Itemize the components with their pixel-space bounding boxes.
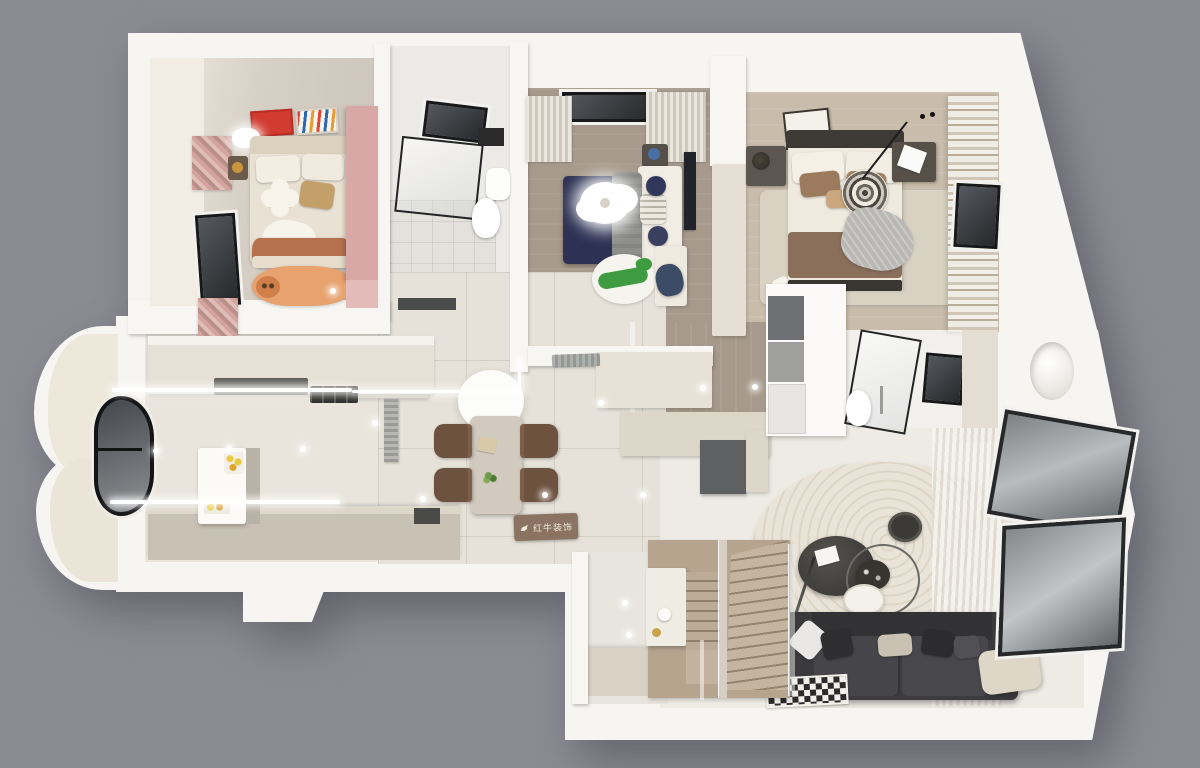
wall-entry-left <box>572 552 588 704</box>
side-table-dark <box>888 512 922 542</box>
led-strip-kitchen-south <box>110 500 340 504</box>
master-bath-window <box>922 352 966 405</box>
kitchen-counter-north-top <box>148 336 434 345</box>
spotlight <box>542 492 548 498</box>
stairs-glass-panel-left <box>718 540 727 698</box>
range-hood <box>214 378 308 395</box>
tall-cabinet-bed2-master <box>712 164 746 336</box>
bath1-shelf <box>478 128 504 146</box>
led-strip-kitchen-north <box>112 388 352 392</box>
wardrobe-door-white <box>768 384 806 434</box>
floorplan-render: 红牛装饰 <box>0 0 1200 768</box>
dining-table <box>470 416 522 514</box>
spotlight <box>300 446 306 452</box>
sofa-pillow-gray <box>953 635 981 660</box>
bed2-monitor <box>684 152 696 230</box>
wall-bath-bed2 <box>510 42 528 372</box>
fridge-side-panel <box>246 448 260 524</box>
spotlight <box>626 632 632 638</box>
sofa-pillow-beige <box>877 633 912 657</box>
kitchen-appliance-dark <box>414 508 440 524</box>
spotlight <box>622 600 628 606</box>
spotlight <box>700 385 706 391</box>
wardrobe-door-gray <box>768 342 804 382</box>
kids-headboard <box>250 136 350 154</box>
bed2-cloud-light-center <box>600 198 610 208</box>
spotlight <box>330 288 336 294</box>
bath1-toilet <box>472 198 500 238</box>
spotlight <box>752 384 758 390</box>
door-frame-dark <box>398 298 456 310</box>
spotlight <box>372 420 378 426</box>
hall-dark-cabinet <box>700 440 746 494</box>
dining-chair-4 <box>520 468 558 502</box>
kids-rug-cat-head <box>256 276 280 298</box>
watermark-text: 红牛装饰 <box>533 520 573 534</box>
kids-pillow-left <box>255 155 300 183</box>
bed2-pillow-round1 <box>646 176 666 196</box>
wall-bed2-master <box>710 56 746 166</box>
kids-flower-pillow <box>268 186 292 210</box>
kids-pillow-right <box>302 153 345 180</box>
kids-pillow-tan <box>298 180 335 210</box>
kids-window <box>195 213 241 308</box>
dining-chair-2 <box>434 468 472 502</box>
dining-chair-3 <box>520 424 558 458</box>
sofa-pillow-dark <box>920 628 955 658</box>
master-floor-lamp-dot2 <box>930 112 935 117</box>
kids-poster-stripes <box>295 107 339 136</box>
hall-cabinet-right <box>746 430 768 492</box>
spotlight <box>640 492 646 498</box>
radiator-vent <box>384 398 398 462</box>
stairs-glass-partition <box>700 640 704 700</box>
spotlight <box>153 448 159 454</box>
kids-wardrobe-pink <box>346 106 378 280</box>
spotlight <box>226 446 232 452</box>
decor-gold <box>652 628 661 637</box>
stairs-flight-right <box>726 540 788 690</box>
kids-curtain-upper <box>192 136 232 190</box>
stairs-glass-panel-right <box>788 544 795 696</box>
watermark-plate: 红牛装饰 <box>514 513 579 541</box>
bed2-vase-blue <box>648 148 660 160</box>
bath1-sink <box>486 168 510 200</box>
bay-window-mullion <box>98 448 142 451</box>
master-window <box>953 183 1000 249</box>
master-towel-bar <box>880 386 883 414</box>
shell-entry-stub <box>243 583 327 622</box>
master-toilet <box>846 390 871 426</box>
decor-vase-white <box>658 608 671 621</box>
master-floor-lamp-dot1 <box>920 114 925 119</box>
led-strip-vertical <box>518 358 521 392</box>
spotlight <box>598 400 604 406</box>
led-strip-dining <box>352 390 522 393</box>
master-plant-left <box>752 152 770 170</box>
kids-wardrobe-pink-lower <box>346 280 378 308</box>
kids-table-lamp <box>232 162 243 173</box>
wall-niche-round <box>1030 342 1074 400</box>
bed2-door-mat <box>552 353 600 368</box>
cabinet-bed2-south <box>596 352 712 408</box>
bed2-pillow-round2 <box>648 226 668 246</box>
wardrobe-door-dark <box>768 296 804 340</box>
dining-chair-1 <box>434 424 472 458</box>
bull-logo-icon <box>519 522 530 533</box>
bay-curved-window <box>94 396 154 516</box>
bath1-shower-glass <box>394 136 483 220</box>
bed2-curtain-left <box>526 96 572 162</box>
bed2-window <box>562 92 654 122</box>
bed2-pillow-stripe <box>640 194 666 224</box>
dining-plant <box>482 470 498 484</box>
balcony-window-lower <box>998 517 1126 656</box>
fridge-fruit-tray <box>224 452 244 474</box>
spotlight <box>420 496 426 502</box>
master-bath-wall-right <box>962 330 998 442</box>
